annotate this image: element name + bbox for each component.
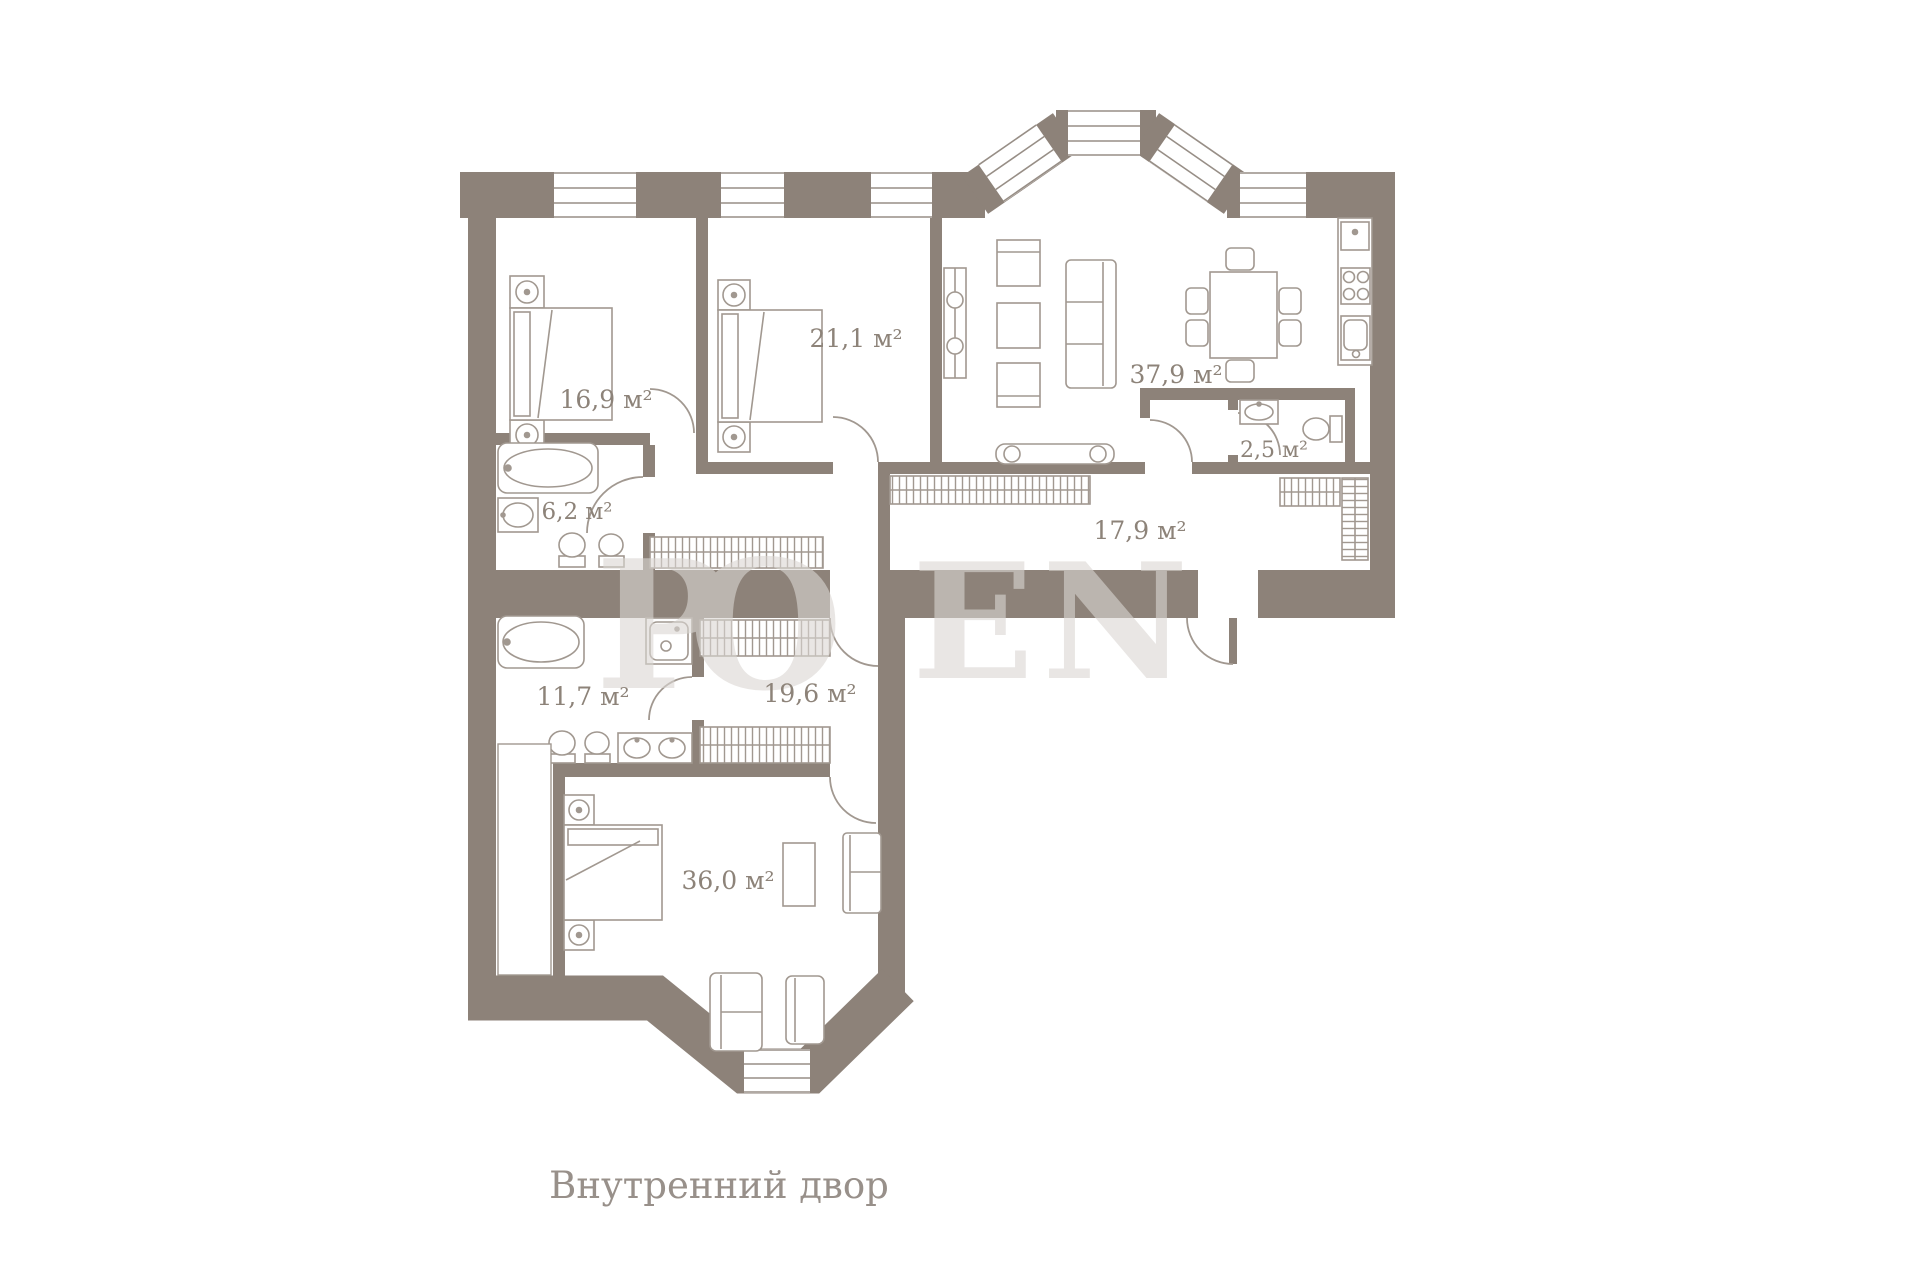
room-label-bathroom-2: 11,7 м² [536, 682, 629, 711]
double-sink-icon [618, 733, 692, 763]
wardrobe-icon [1342, 478, 1368, 560]
sofa-icon [710, 973, 762, 1051]
sofa-icon [1066, 260, 1116, 388]
window-icon [721, 172, 784, 218]
wardrobe-icon [700, 727, 830, 763]
room-label-hallway: 17,9 м² [1093, 516, 1186, 545]
door-arc [1150, 420, 1192, 462]
room-label-wc: 2,5 м² [1240, 438, 1308, 463]
window-icon [744, 1049, 810, 1093]
bench-icon [996, 444, 1114, 464]
armchair-icon [843, 833, 881, 913]
room-label-bathroom-1: 6,2 м² [542, 499, 613, 525]
door-arc [1187, 618, 1233, 664]
room-label-dressing: 19,6 м² [763, 679, 856, 708]
door-arc [650, 389, 694, 433]
armchair-icon [997, 240, 1040, 407]
bathtub-icon [498, 616, 584, 668]
toilet-icon [549, 731, 575, 763]
room-label-bedroom-2: 21,1 м² [809, 324, 902, 353]
shaft-niche [498, 744, 551, 975]
door-arc [830, 777, 876, 823]
window-icon [1240, 172, 1306, 218]
toilet-icon [559, 533, 585, 567]
wardrobe-icon [890, 476, 1090, 504]
sink-icon [498, 498, 538, 532]
bed-icon [564, 795, 662, 950]
window-icon [1068, 110, 1140, 156]
floor-plan: Р О Е N 16,9 м² 21,1 м² 37,9 м² 2,5 м² 6… [0, 0, 1920, 1279]
wardrobe-icon [1280, 478, 1340, 506]
sink-icon [1240, 400, 1278, 424]
floor-plan-page: Р О Е N 16,9 м² 21,1 м² 37,9 м² 2,5 м² 6… [0, 0, 1920, 1279]
armchair-icon [786, 976, 824, 1044]
bed-icon [718, 280, 822, 452]
room-label-bedroom-3: 36,0 м² [681, 866, 774, 895]
dresser-icon [783, 843, 815, 906]
bidet-icon [585, 732, 610, 763]
kitchen-counter-icon [1338, 218, 1372, 365]
toilet-icon [1303, 416, 1342, 442]
door-arc [833, 417, 878, 462]
bathtub-icon [498, 443, 598, 493]
room-label-kitchen-living: 37,9 м² [1129, 360, 1222, 389]
bed-icon [510, 276, 612, 450]
window-icon [554, 172, 636, 218]
window-icon [871, 172, 932, 218]
svg-text:Е: Е [912, 528, 1034, 716]
wardrobe-icon [944, 268, 966, 378]
room-label-bedroom-1: 16,9 м² [559, 385, 652, 414]
courtyard-caption: Внутренний двор [549, 1164, 889, 1207]
svg-text:N: N [1042, 528, 1188, 716]
